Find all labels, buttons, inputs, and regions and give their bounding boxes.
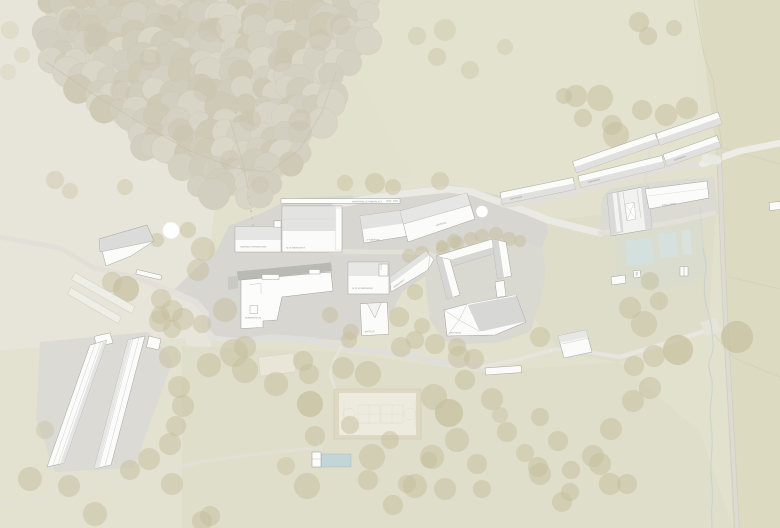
- svg-text:SEMINARHAUS: SEMINARHAUS: [245, 317, 262, 320]
- svg-text:ALTE SCHREINEREI: ALTE SCHREINEREI: [352, 287, 373, 290]
- svg-text:SPORTHALLE PARKPLATZ: SPORTHALLE PARKPLATZ: [352, 201, 383, 204]
- svg-text:LV GEBÄUDE: LV GEBÄUDE: [366, 239, 380, 242]
- svg-text:GASTHAUS: GASTHAUS: [449, 332, 462, 335]
- svg-text:ALTE WERKSTATT: ALTE WERKSTATT: [286, 247, 306, 250]
- svg-text:KAPELLE: KAPELLE: [365, 330, 375, 334]
- svg-text:GEBÄUDE VERWALTUNG: GEBÄUDE VERWALTUNG: [240, 246, 267, 249]
